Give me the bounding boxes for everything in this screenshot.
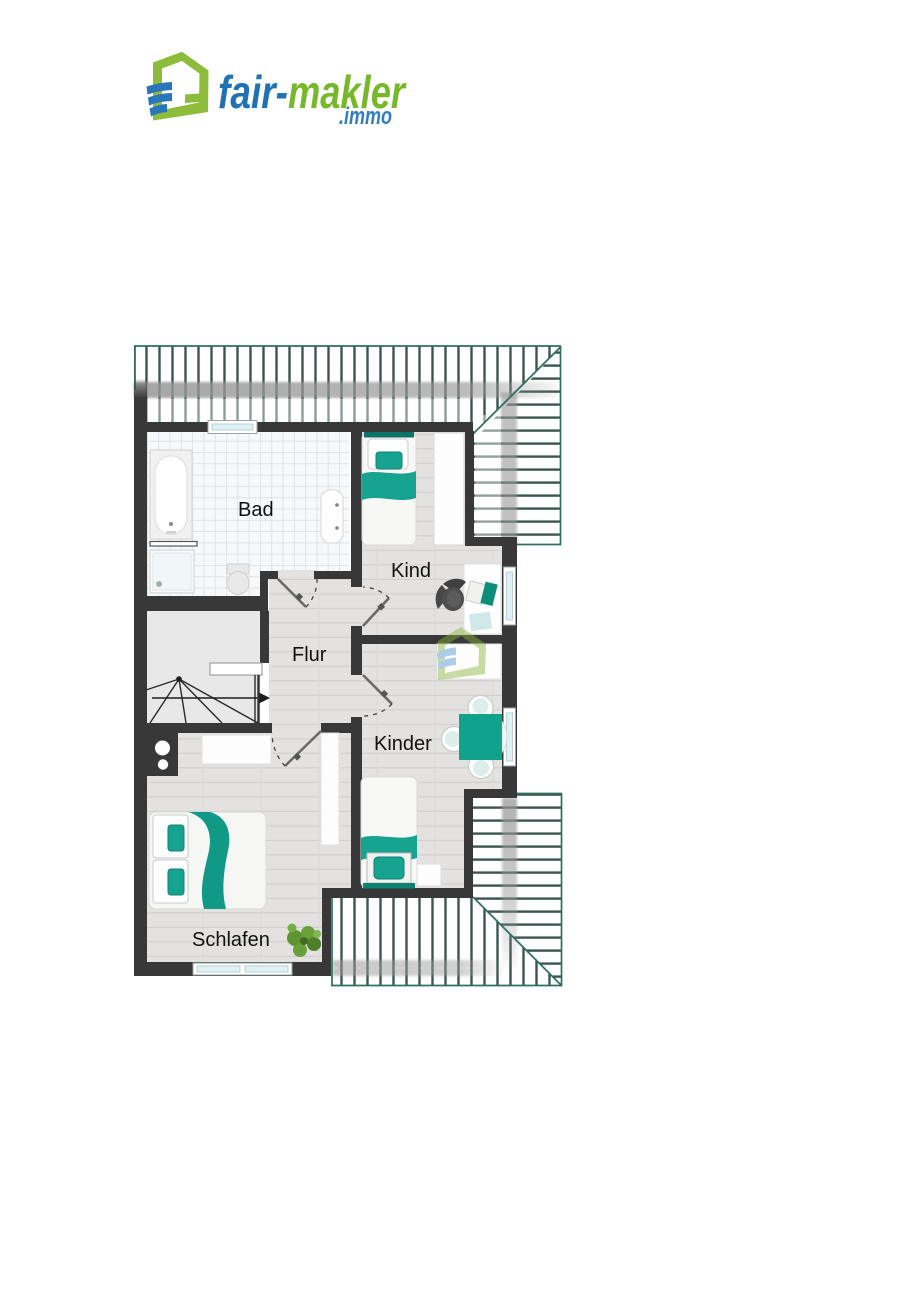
svg-text:Schlafen: Schlafen xyxy=(192,929,270,951)
svg-text:Kinder: Kinder xyxy=(374,733,432,755)
svg-text:Bad: Bad xyxy=(238,499,274,521)
svg-text:Flur: Flur xyxy=(292,644,327,666)
svg-text:Kind: Kind xyxy=(391,560,431,582)
svg-text:.immo: .immo xyxy=(339,103,392,130)
